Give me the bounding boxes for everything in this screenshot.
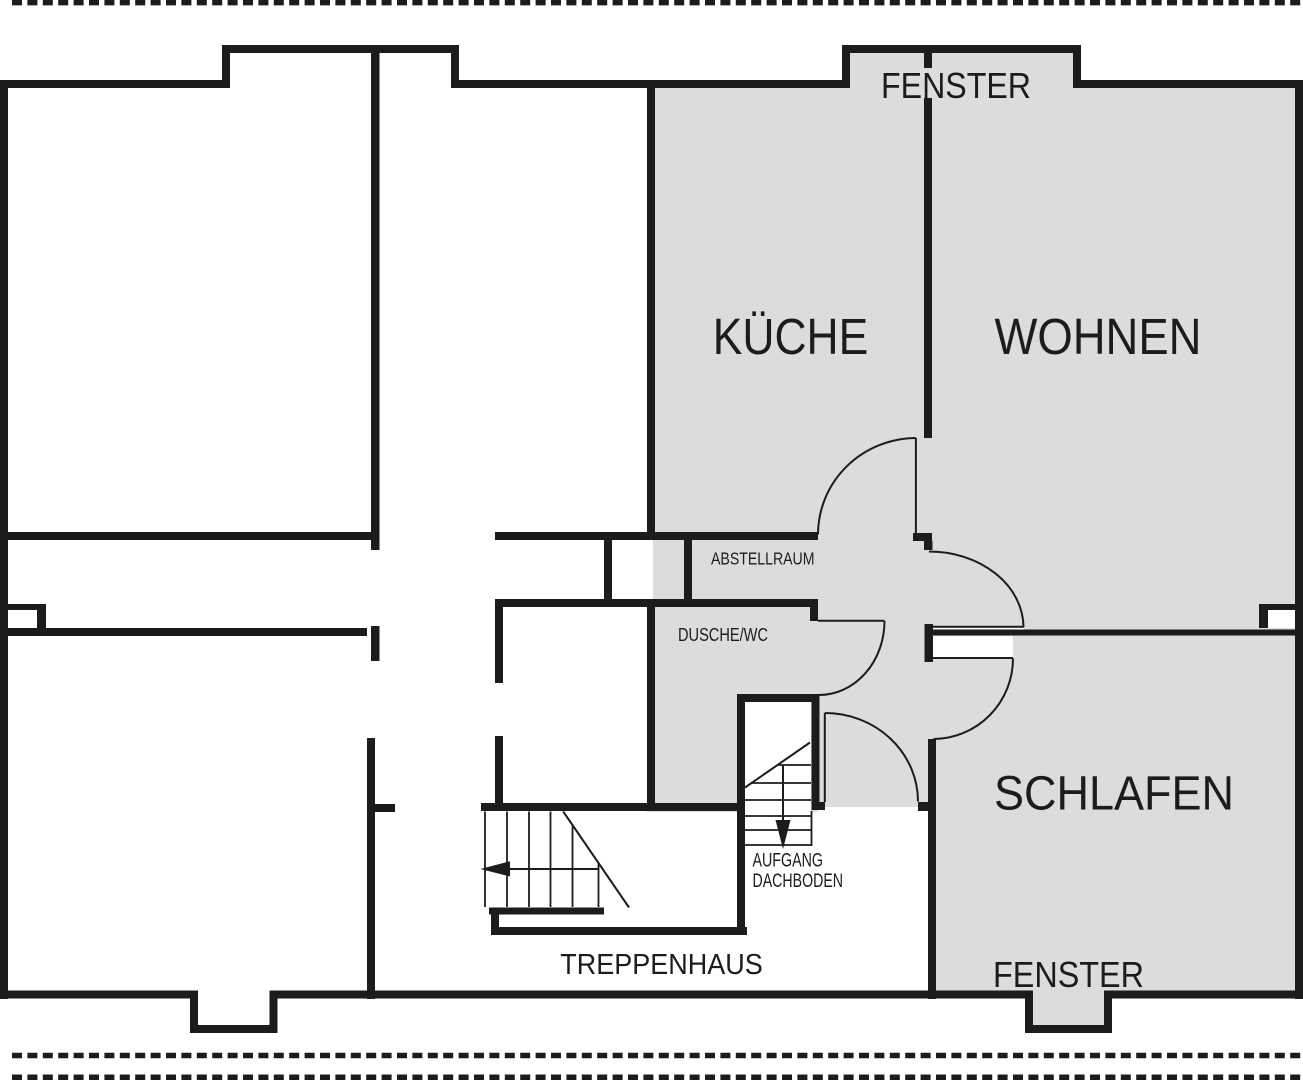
svg-text:WOHNEN: WOHNEN — [995, 308, 1202, 365]
svg-text:TREPPENHAUS: TREPPENHAUS — [560, 949, 763, 981]
svg-text:ABSTELLRAUM: ABSTELLRAUM — [711, 549, 815, 569]
svg-text:FENSTER: FENSTER — [993, 954, 1144, 995]
svg-text:DACHBODEN: DACHBODEN — [753, 870, 844, 892]
svg-text:SCHLAFEN: SCHLAFEN — [994, 767, 1234, 821]
svg-text:AUFGANG: AUFGANG — [753, 850, 824, 872]
svg-text:KÜCHE: KÜCHE — [713, 308, 869, 365]
svg-text:DUSCHE/WC: DUSCHE/WC — [678, 624, 768, 645]
svg-text:FENSTER: FENSTER — [881, 65, 1031, 106]
